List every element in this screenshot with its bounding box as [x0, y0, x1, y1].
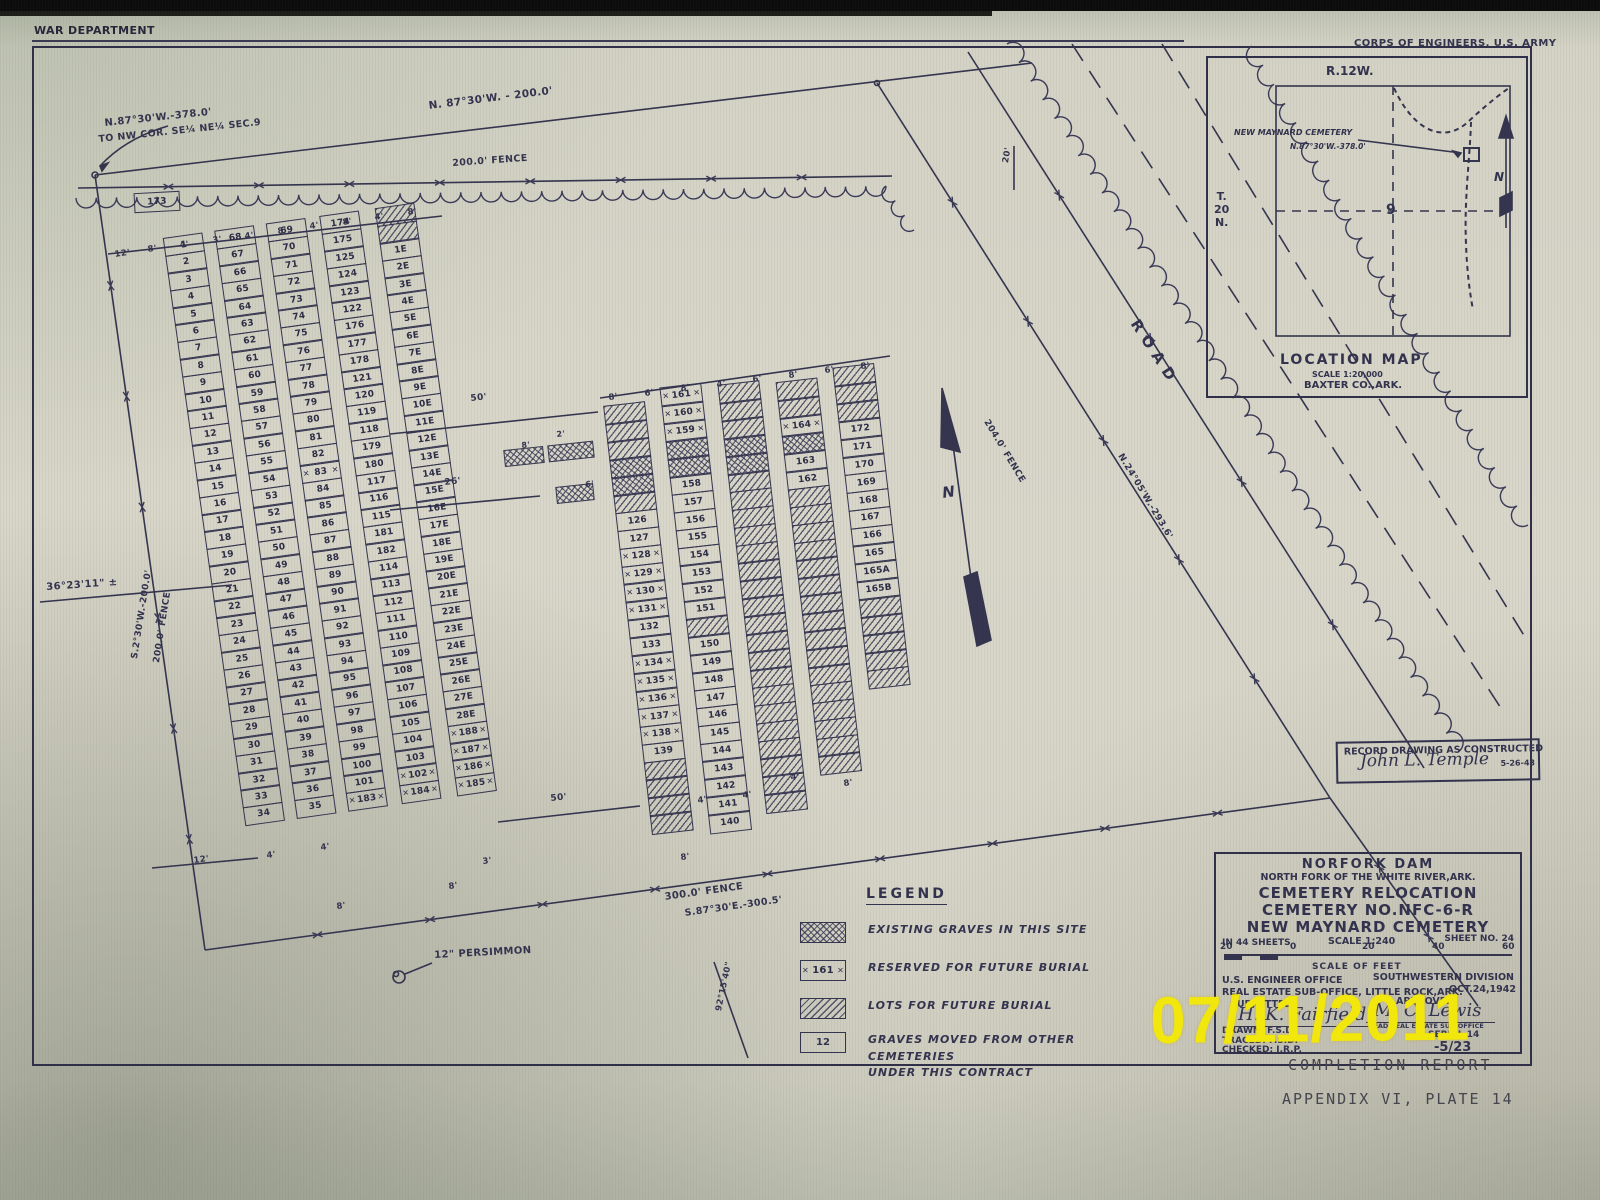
dimension-label: 12'	[114, 248, 131, 260]
north-arrow-letter: N	[941, 482, 956, 502]
photo-edge	[0, 11, 992, 16]
dimension-label: 3'	[482, 856, 492, 867]
dimension-label: 8'	[448, 881, 458, 892]
legend-item: 161 RESERVED FOR FUTURE BURIAL	[800, 960, 1090, 981]
scale-tick: 20	[1362, 942, 1375, 952]
dimension-label: 8'	[147, 244, 158, 255]
dimension-label: 4'	[309, 221, 320, 232]
grave-plot-173: 173	[134, 191, 181, 213]
dimension-label: 8'	[407, 207, 418, 218]
dimension-label: 8'	[277, 226, 288, 237]
location-map-linework	[1208, 58, 1526, 396]
dimension-label: 8'	[336, 901, 346, 912]
scale-bar: 200204060	[1224, 954, 1512, 962]
scale-tick: 0	[1290, 942, 1296, 952]
inset-range-label: R.12W.	[1326, 64, 1374, 78]
location-map-inset: R.12W. T.20N. 9 NEW MAYNARD CEMETERY N.8…	[1206, 56, 1528, 398]
inset-north-letter: N	[1494, 170, 1504, 184]
record-stamp-signature: John L. Temple	[1360, 749, 1489, 771]
label-dim-50b: 50'	[550, 792, 567, 804]
legend-item: LOTS FOR FUTURE BURIAL	[800, 998, 1053, 1019]
dimension-label: 8'	[860, 360, 870, 371]
inset-township-label: T.20N.	[1214, 190, 1229, 230]
dimension-label: 4'	[697, 795, 707, 806]
scanned-plat-photo: WAR DEPARTMENT CORPS OF ENGINEERS, U.S. …	[0, 0, 1600, 1200]
label-dim-8: 8'	[521, 440, 531, 450]
legend-item: 12 GRAVES MOVED FROM OTHER CEMETERIES UN…	[800, 1032, 1130, 1082]
corps-of-engineers-label: CORPS OF ENGINEERS, U.S. ARMY	[1354, 38, 1556, 49]
record-drawing-stamp: RECORD DRAWING AS CONSTRUCTED John L. Te…	[1336, 738, 1541, 784]
reserved-swatch: 161	[800, 960, 846, 981]
label-dim-2: 2'	[556, 429, 566, 439]
scale-tick: 40	[1432, 942, 1445, 952]
dimension-label: 8'	[680, 383, 690, 394]
dimension-label: 4'	[266, 850, 276, 861]
label-dim-50a: 50'	[470, 392, 487, 404]
record-stamp-date: 5-26-43	[1500, 758, 1535, 768]
dimension-label: 4'	[244, 230, 255, 241]
dimension-label: 6'	[644, 387, 654, 398]
legend-title: LEGEND	[866, 886, 947, 905]
dimension-label: 12'	[193, 854, 210, 866]
dimension-label: 8'	[342, 216, 353, 227]
inset-title: LOCATION MAP	[1280, 352, 1423, 368]
photo-edge	[0, 0, 1600, 11]
future-lots-swatch	[800, 998, 846, 1019]
dimension-label: 8'	[788, 369, 798, 380]
dimension-label: 4'	[742, 790, 752, 801]
dimension-label: 8'	[843, 778, 853, 789]
dimension-label: 8'	[680, 852, 690, 863]
dimension-label: 4'	[790, 772, 800, 783]
dimension-label: 4'	[374, 212, 385, 223]
dimension-label: 8'	[608, 392, 618, 403]
war-department-label: WAR DEPARTMENT	[34, 24, 155, 37]
inset-scale: SCALE 1:20,000	[1312, 370, 1383, 379]
dimension-label: 3'	[212, 235, 223, 246]
date-stamp: 07/11/2011	[1150, 979, 1470, 1058]
dimension-label: 4'	[179, 239, 190, 250]
dimension-label: 6'	[752, 374, 762, 385]
label-dim-26: 26'	[444, 476, 461, 488]
inset-bearing-label: N.87°30'W.-378.0'	[1290, 142, 1366, 151]
scale-tick: 60	[1502, 942, 1515, 952]
inset-county: BAXTER CO.,ARK.	[1304, 380, 1402, 391]
dimension-label: 4'	[320, 842, 330, 853]
inset-cemetery-label: NEW MAYNARD CEMETERY	[1234, 128, 1352, 137]
dimension-label: 6'	[824, 365, 834, 376]
scale-tick: 20	[1220, 942, 1233, 952]
label-dim-6: 6'	[585, 479, 595, 489]
appendix-label: APPENDIX VI, PLATE 14	[1282, 1090, 1514, 1108]
completion-report-label: COMPLETION REPORT	[1288, 1056, 1493, 1074]
moved-graves-swatch: 12	[800, 1032, 846, 1053]
dimension-label: 4'	[716, 378, 726, 389]
existing-graves-swatch	[800, 922, 846, 943]
inset-section-number: 9	[1386, 202, 1396, 218]
legend-item: EXISTING GRAVES IN THIS SITE	[800, 922, 1087, 943]
